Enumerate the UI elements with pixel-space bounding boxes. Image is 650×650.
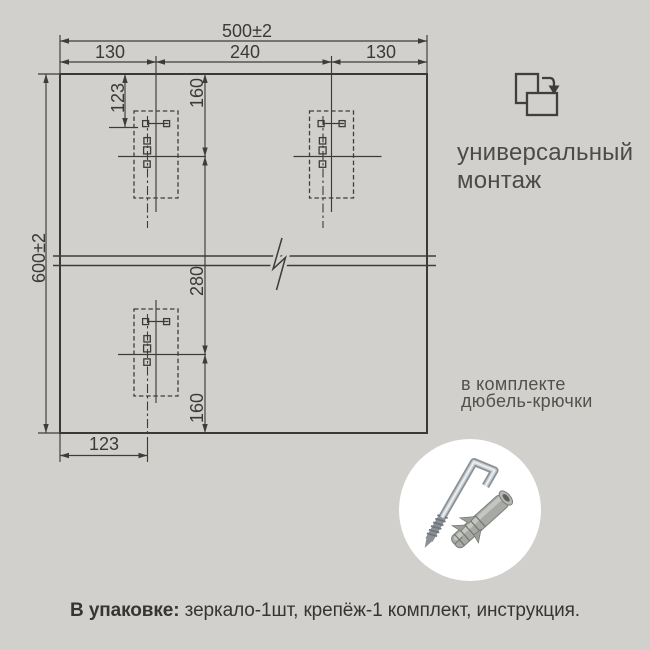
- universal-mount-label: универсальный монтаж: [457, 139, 633, 195]
- universal-mount-line1: универсальный: [457, 139, 633, 167]
- dim-total-width: 500±2: [222, 21, 272, 41]
- break-symbol: [53, 238, 436, 290]
- mounting-bracket-top-left: [118, 111, 206, 198]
- dim-160-bottom: 160: [187, 393, 207, 423]
- dim-240-center: 240: [230, 42, 260, 62]
- dim-130-right: 130: [366, 42, 396, 62]
- mounting-bracket-bottom-left: [118, 309, 206, 396]
- universal-mount-line2: монтаж: [457, 167, 633, 195]
- mounting-bracket-top-right: [294, 111, 382, 198]
- dim-160-top: 160: [187, 78, 207, 108]
- dim-123-top: 123: [108, 83, 128, 113]
- dim-total-height: 600±2: [29, 233, 49, 283]
- kit-included-line2: дюбель-крючки: [461, 393, 593, 410]
- package-contents-caption: В упаковке: зеркало-1шт, крепёж-1 компле…: [0, 600, 650, 622]
- kit-included-label: в комплекте дюбель-крючки: [461, 376, 593, 409]
- dimension-lines: [38, 35, 427, 456]
- dim-280-mid: 280: [187, 266, 207, 296]
- package-contents-items: зеркало-1шт, крепёж-1 комплект, инструкц…: [180, 600, 580, 621]
- technical-drawing: 500±2 130 240 130 123 160 600±2 280 160 …: [0, 0, 650, 650]
- package-contents-label: В упаковке:: [70, 600, 179, 621]
- dim-130-left: 130: [95, 42, 125, 62]
- rotate-orientation-icon: [516, 74, 560, 115]
- dim-123-bottom: 123: [89, 434, 119, 454]
- hardware-photo-circle: [399, 439, 541, 581]
- dimension-arrows: [43, 38, 427, 458]
- hook-and-dowel-image: [399, 439, 541, 581]
